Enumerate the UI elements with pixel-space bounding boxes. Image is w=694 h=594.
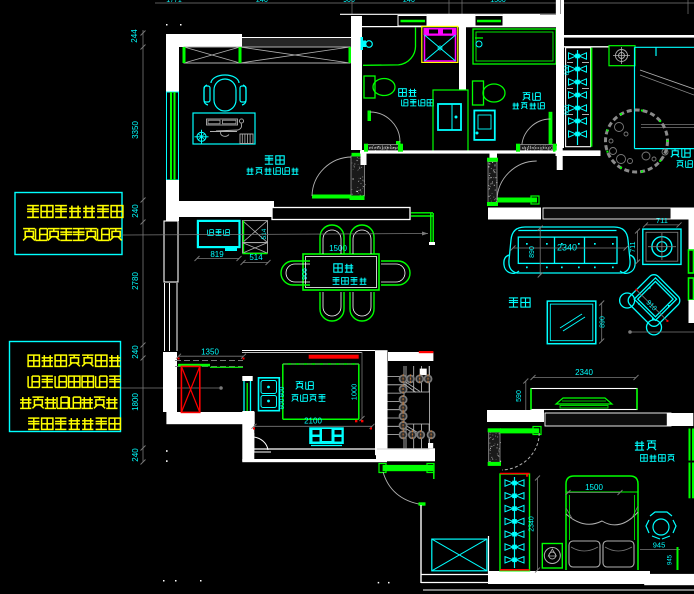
svg-text:900: 900: [343, 0, 355, 4]
svg-text:244: 244: [130, 29, 139, 43]
svg-text:600: 600: [564, 64, 571, 75]
svg-text:1350: 1350: [201, 348, 219, 357]
svg-text:2100: 2100: [304, 417, 322, 426]
svg-text:945: 945: [668, 554, 674, 565]
svg-text:711: 711: [630, 241, 637, 252]
svg-text:711: 711: [656, 216, 668, 225]
svg-text:1500: 1500: [490, 0, 506, 4]
svg-text:906: 906: [302, 268, 309, 280]
svg-text:890: 890: [529, 246, 536, 258]
svg-text:514: 514: [261, 228, 268, 239]
svg-text:240: 240: [131, 204, 140, 218]
svg-text:2340: 2340: [557, 243, 577, 253]
svg-text:514: 514: [249, 253, 263, 262]
svg-text:1771: 1771: [166, 0, 182, 4]
svg-text:600: 600: [279, 386, 286, 397]
svg-text:890: 890: [600, 316, 607, 328]
svg-text:600: 600: [279, 398, 286, 409]
svg-text:240: 240: [131, 345, 140, 359]
svg-text:819: 819: [210, 250, 224, 259]
svg-text:2340: 2340: [529, 516, 536, 532]
svg-text:2340: 2340: [575, 368, 593, 377]
svg-text:1000: 1000: [350, 384, 359, 401]
svg-text:240: 240: [403, 0, 415, 4]
svg-text:945: 945: [653, 541, 666, 550]
svg-text:600: 600: [564, 104, 571, 115]
svg-text:1500: 1500: [585, 483, 603, 492]
svg-text:590: 590: [516, 390, 523, 402]
svg-text:1800: 1800: [131, 393, 140, 411]
svg-text:2780: 2780: [131, 272, 140, 290]
svg-text:3350: 3350: [131, 121, 140, 139]
svg-text:240: 240: [256, 0, 268, 4]
svg-text:240: 240: [131, 448, 140, 462]
